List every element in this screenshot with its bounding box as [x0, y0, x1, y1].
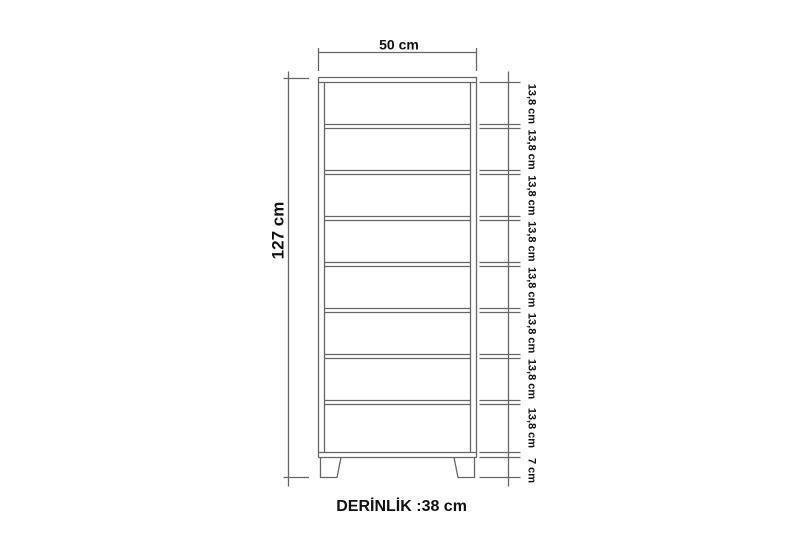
svg-text:13,8 cm: 13,8 cm [526, 267, 538, 308]
svg-text:13,8 cm: 13,8 cm [526, 129, 538, 170]
svg-text:13,8 cm: 13,8 cm [526, 313, 538, 354]
svg-text:13,8 cm: 13,8 cm [526, 221, 538, 262]
svg-text:13,8 cm: 13,8 cm [526, 175, 538, 216]
svg-text:50 cm: 50 cm [379, 37, 419, 53]
svg-text:13,8 cm: 13,8 cm [526, 408, 538, 449]
svg-text:7 cm: 7 cm [526, 458, 538, 483]
svg-text:127 cm: 127 cm [269, 202, 288, 260]
svg-text:13,8 cm: 13,8 cm [526, 84, 538, 125]
svg-text:13,8 cm: 13,8 cm [526, 359, 538, 400]
svg-text:DERİNLİK :38 cm: DERİNLİK :38 cm [336, 497, 467, 515]
